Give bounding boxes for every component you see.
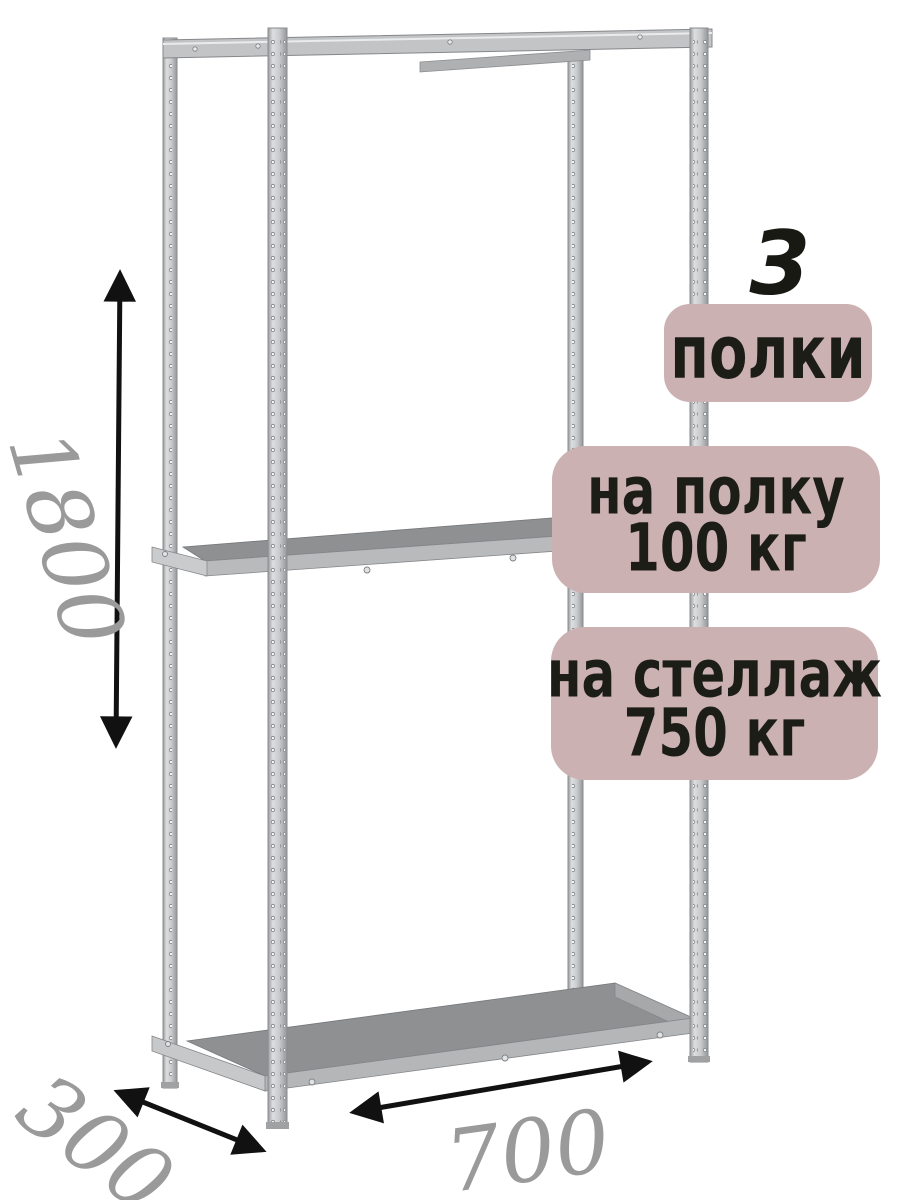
badge-per-shelf-load-line2: 100 кг [625,510,807,585]
badge-per-shelf-load: на полку 100 кг [552,446,880,593]
badge-shelves-label: полки [670,310,865,396]
shelf-bottom [152,983,693,1091]
badge-shelves: полки [664,304,872,402]
product-image: 3 полки на полку 100 кг на стеллаж 750 к… [0,0,900,1200]
post-front-left [266,28,289,1129]
badge-per-rack-load: на стеллаж 750 кг [551,627,878,780]
shelf-count-number: 3 [740,214,820,314]
badge-per-rack-load-line2: 750 кг [624,694,806,772]
shelf-top [163,29,712,72]
height-dimension-arrow-icon [116,274,120,744]
